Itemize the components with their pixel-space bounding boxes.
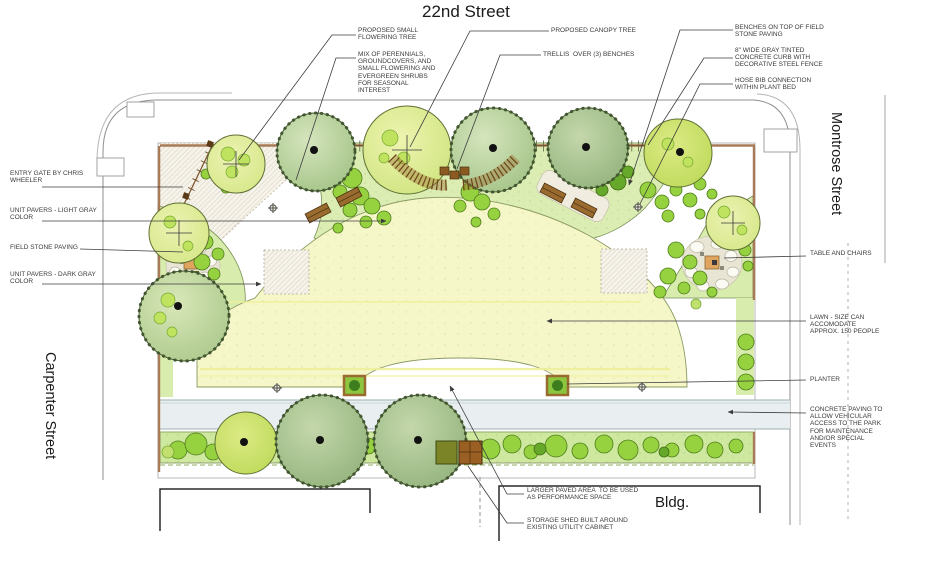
tree-flowering xyxy=(207,135,265,193)
callout-storage-shed: STORAGE SHED BUILT AROUND EXISTING UTILI… xyxy=(527,517,628,531)
street-label-montrose: Montrose Street xyxy=(828,112,844,215)
callout-performance-space: LARGER PAVED AREA TO BE USED AS PERFORMA… xyxy=(527,487,638,501)
site-plan-page: 22nd Street Montrose Street Carpenter St… xyxy=(0,0,932,570)
tree-canopy xyxy=(139,271,229,361)
callout-field-stone-paving: FIELD STONE PAVING xyxy=(10,244,78,251)
tree-flowering xyxy=(644,119,712,187)
callout-concrete-paving: CONCRETE PAVING TO ALLOW VEHICULAR ACCES… xyxy=(810,406,882,449)
tree-flowering xyxy=(706,196,760,250)
callout-entry-gate: ENTRY GATE BY CHRIS WHEELER xyxy=(10,170,83,184)
callout-proposed-canopy-tree: PROPOSED CANOPY TREE xyxy=(551,27,636,34)
tree-canopy xyxy=(277,113,355,191)
tree-canopy xyxy=(548,108,628,188)
storage-shed xyxy=(436,441,482,464)
callout-lawn: LAWN - SIZE CAN ACCOMODATE APPROX. 150 P… xyxy=(810,314,879,336)
callout-planter: PLANTER xyxy=(810,376,840,383)
building-label: Bldg. xyxy=(655,494,689,511)
callout-unit-pavers-light: UNIT PAVERS - LIGHT GRAY COLOR xyxy=(10,207,97,221)
callout-perennials-mix: MIX OF PERENNIALS, GROUNDCOVERS, AND SMA… xyxy=(358,51,435,94)
callout-proposed-small-flowering-tree: PROPOSED SMALL FLOWERING TREE xyxy=(358,27,418,41)
callout-trellis-benches: TRELLIS OVER (3) BENCHES xyxy=(543,51,634,58)
callout-concrete-curb-fence: 8" WIDE GRAY TINTED CONCRETE CURB WITH D… xyxy=(735,47,823,69)
callout-table-chairs: TABLE AND CHAIRS xyxy=(810,250,872,257)
street-label-carpenter: Carpenter Street xyxy=(42,352,58,459)
callout-benches-field-stone: BENCHES ON TOP OF FIELD STONE PAVING xyxy=(735,24,824,38)
tree-flowering xyxy=(149,203,209,263)
street-label-22nd: 22nd Street xyxy=(422,2,510,22)
callout-hose-bib: HOSE BIB CONNECTION WITHIN PLANT BED xyxy=(735,77,811,91)
callout-unit-pavers-dark: UNIT PAVERS - DARK GRAY COLOR xyxy=(10,271,96,285)
tree-flowering xyxy=(215,412,277,474)
tree-canopy xyxy=(276,395,368,487)
